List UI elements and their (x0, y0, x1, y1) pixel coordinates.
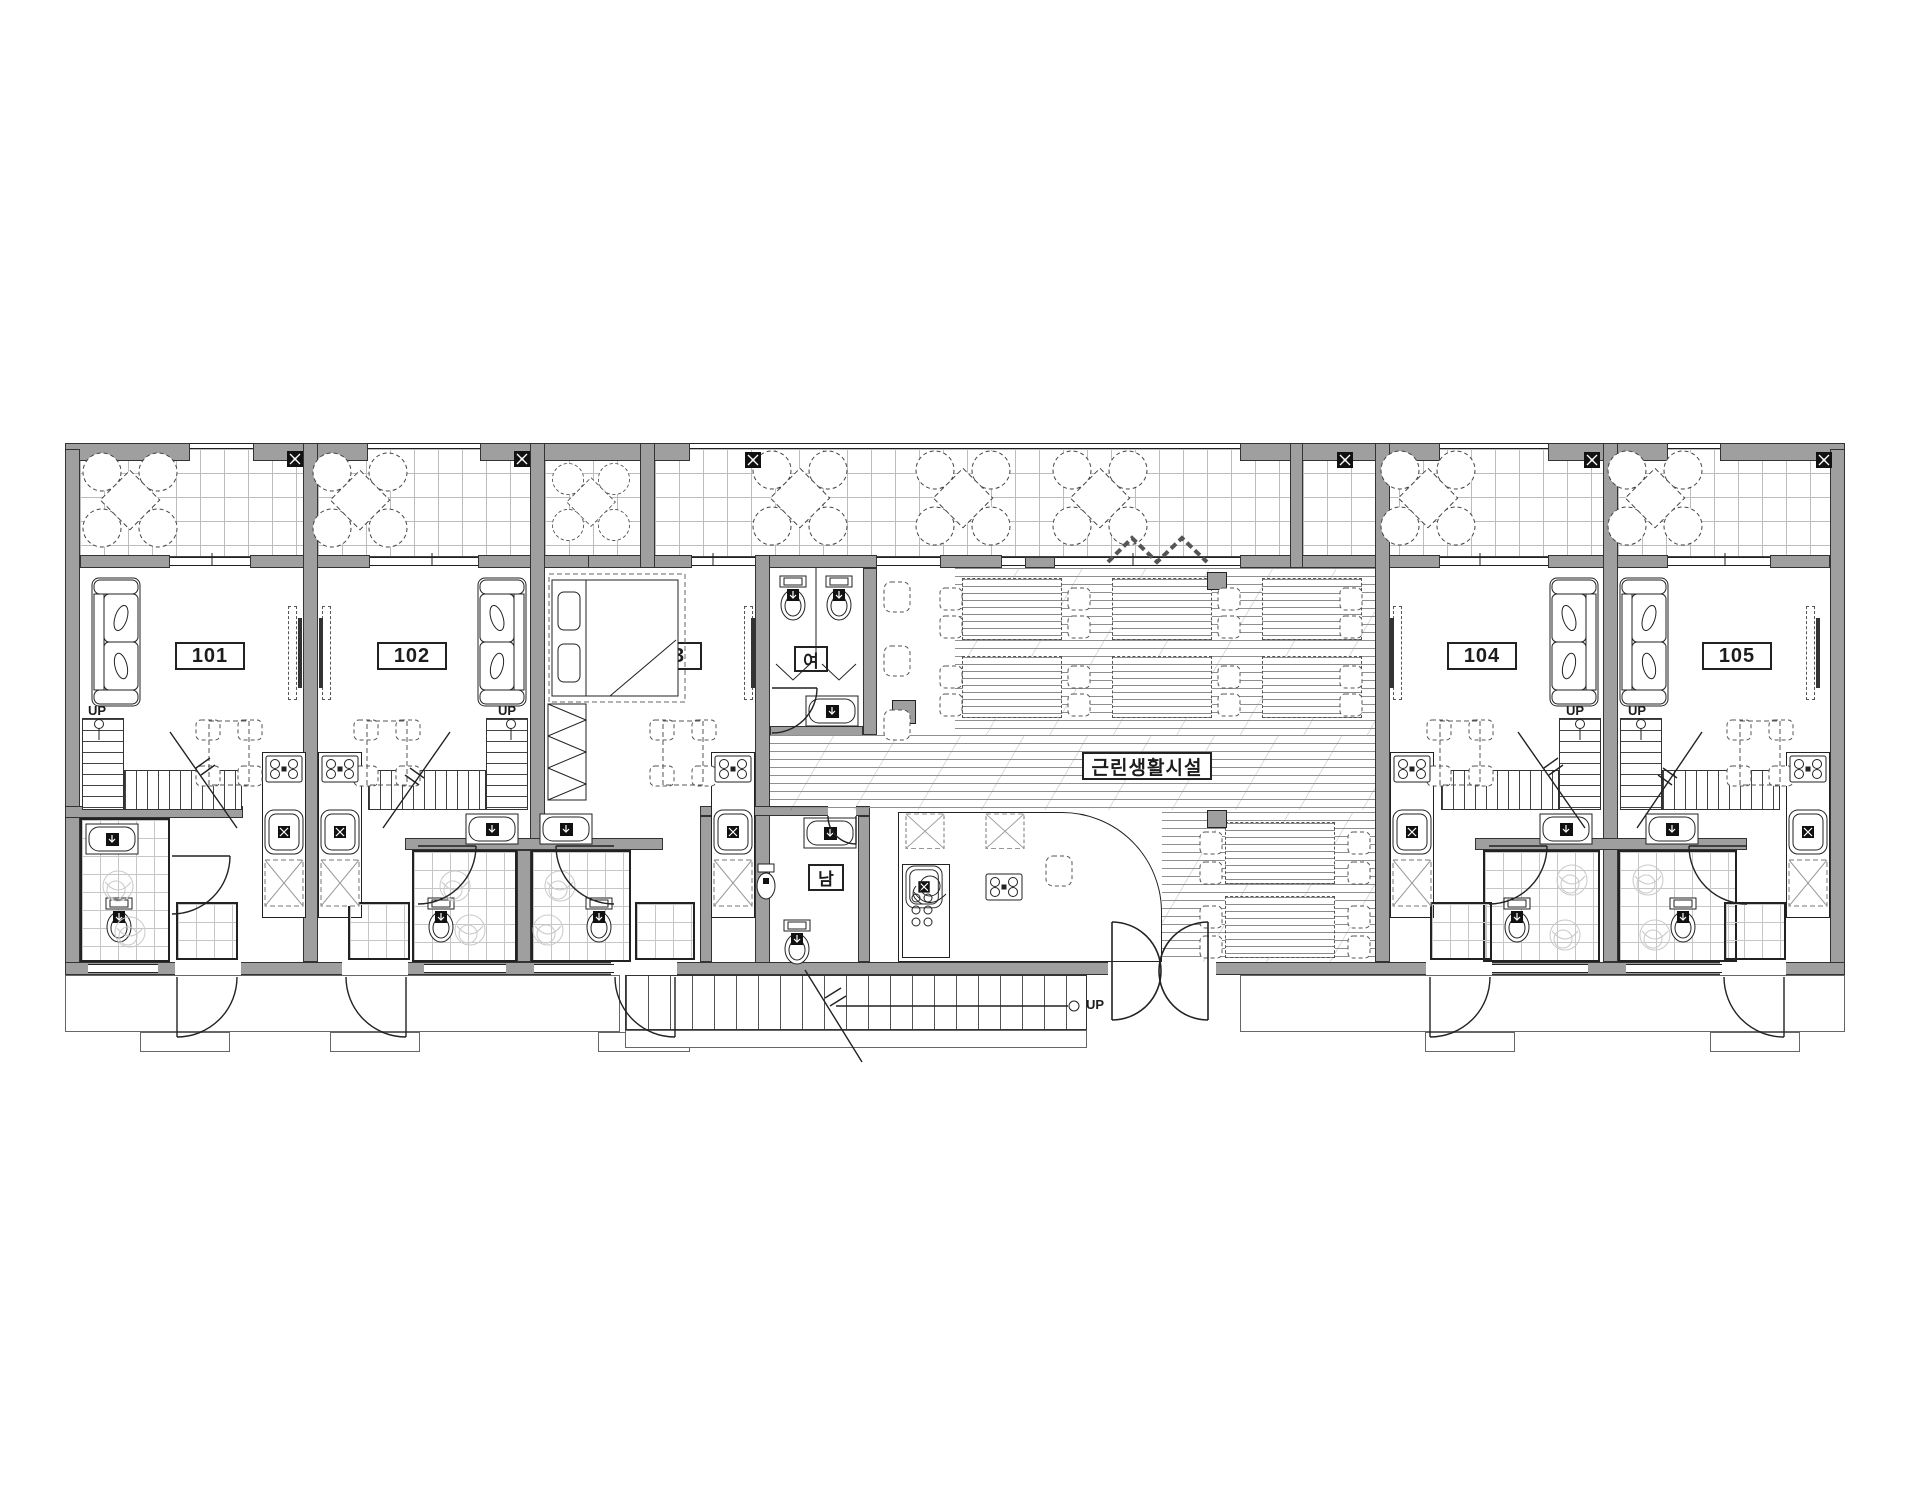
dining-set-103-part (650, 720, 716, 786)
column (892, 700, 916, 724)
sofa-105 (1620, 578, 1668, 706)
wall-party-104-105 (1603, 443, 1618, 962)
window (88, 964, 158, 973)
bed-103-part (558, 644, 580, 682)
kitchen-101 (262, 752, 306, 918)
tv-101 (288, 606, 297, 700)
stair-101 (82, 718, 124, 810)
stair-105 (1662, 770, 1780, 810)
parapet-cap (1720, 443, 1845, 461)
tv-102-panel (319, 618, 323, 688)
parapet-cap (1240, 443, 1440, 461)
kitchen-104 (1390, 752, 1434, 918)
bed-103 (549, 574, 685, 702)
terrace-unit-105 (1618, 449, 1830, 557)
porch-step (140, 1032, 230, 1052)
bathroom-102 (412, 850, 517, 962)
parapet-cap (65, 443, 190, 461)
hall-table (1262, 578, 1362, 640)
entry-pad-103 (635, 902, 695, 960)
women-label-text: 여 (803, 647, 819, 672)
wall-stub (1025, 557, 1055, 568)
room-number: 104 (1464, 645, 1500, 668)
entry-pad-102 (348, 902, 410, 960)
room-number: 101 (192, 645, 228, 668)
restroom-label-women: 여 (794, 646, 828, 672)
toilet-icon-part (780, 576, 806, 620)
aisle-chairs-part (884, 646, 910, 676)
toilet-icon-part (826, 576, 852, 620)
floor-plan-canvas: 101 102 103 104 105 근린생활시설 여 남 UP UP UP … (0, 0, 1920, 1503)
porch-slab-right (1240, 975, 1845, 1032)
exterior-stair-landing (625, 1030, 1087, 1048)
entry-pad-101 (176, 902, 238, 960)
bathroom-101 (80, 818, 170, 962)
hall-table (1225, 822, 1335, 884)
column (1207, 572, 1227, 590)
kitchen-103 (711, 752, 755, 918)
bed-103-part (549, 574, 685, 702)
wall-core-right (863, 568, 877, 735)
stair-102 (368, 770, 486, 810)
tv-104-panel (1390, 618, 1394, 688)
entry-opening-102 (342, 962, 408, 975)
hall-table (1112, 656, 1212, 718)
wall-terrace-div-com (1290, 443, 1303, 568)
stair-104 (1441, 770, 1559, 810)
wall-terrace-div-103 (640, 443, 655, 568)
sofa-104 (1550, 578, 1598, 706)
restroom-label-men: 남 (808, 864, 844, 891)
wall-outer-left (65, 449, 80, 975)
kitchen-102 (318, 752, 362, 918)
men-label-text: 남 (818, 865, 834, 890)
wall-stub (1770, 555, 1830, 568)
sofa-101-part (92, 578, 140, 706)
hall-table (1112, 578, 1212, 640)
wall-stub (80, 555, 170, 568)
stair-104 (1559, 718, 1601, 810)
commercial-label: 근린생활시설 (1082, 752, 1212, 780)
wall-party-102-103-lower (517, 850, 531, 962)
dining-set-103 (650, 720, 716, 786)
wall-stub (1240, 555, 1440, 568)
wood-floor-corridor (770, 735, 1375, 810)
up-label-105: UP (1628, 703, 1646, 718)
tv-101-panel (298, 618, 302, 688)
door-arcs-part (828, 816, 856, 844)
column (1207, 810, 1227, 828)
room-number: 103 (649, 645, 685, 668)
entry-pad-105 (1724, 902, 1786, 960)
wall-partition (1475, 838, 1747, 850)
up-label-exterior-stair: UP (1086, 997, 1104, 1012)
porch-step (1425, 1032, 1515, 1052)
room-number: 102 (394, 645, 430, 668)
room-number: 105 (1719, 645, 1755, 668)
entry-opening-104 (1426, 962, 1492, 975)
tv-102 (322, 606, 331, 700)
bath-sink-icon-part (806, 696, 858, 726)
sofa-102 (478, 578, 526, 706)
wall-stub (755, 555, 877, 568)
room-label-104: 104 (1447, 642, 1517, 670)
tv-104 (1393, 606, 1402, 700)
window (424, 964, 506, 973)
porch-step (1710, 1032, 1800, 1052)
entry-opening-105 (1720, 962, 1786, 975)
wardrobe-103-part (548, 704, 586, 800)
sofa-104-part (1550, 578, 1598, 706)
kitchen-island (902, 864, 950, 958)
wall-commercial-104 (1375, 443, 1390, 962)
kitchen-105 (1786, 752, 1830, 918)
porch-step (330, 1032, 420, 1052)
room-label-103: 103 (632, 642, 702, 670)
bathroom-104 (1483, 850, 1600, 962)
stair-105 (1620, 718, 1662, 810)
window (1492, 964, 1588, 973)
hall-table (1262, 656, 1362, 718)
commercial-label-text: 근린생활시설 (1092, 753, 1203, 780)
aisle-chairs-part (884, 582, 910, 612)
wardrobe-103-part (548, 704, 586, 800)
stair-101 (124, 770, 242, 810)
wall-party-102-103 (530, 443, 545, 853)
sofa-105-part (1620, 578, 1668, 706)
toilet-icon-part (784, 920, 810, 964)
room-label-101: 101 (175, 642, 245, 670)
entry-pad-104 (1430, 902, 1492, 960)
tv-103-panel (751, 618, 755, 688)
room-label-102: 102 (377, 642, 447, 670)
wall-men-right (858, 816, 870, 962)
room-label-105: 105 (1702, 642, 1772, 670)
entry-opening-commercial (1108, 962, 1216, 975)
bathroom-103 (531, 850, 631, 962)
terrace-commercial (655, 449, 1290, 557)
tv-105 (1806, 606, 1815, 700)
hall-table (962, 656, 1062, 718)
parapet-cap (480, 443, 690, 461)
terrace-unit-102 (318, 449, 530, 557)
entry-opening-103 (611, 962, 677, 975)
porch-slab-left (65, 975, 620, 1032)
terrace-unit-103 (545, 449, 640, 557)
entry-opening-101 (175, 962, 241, 975)
up-label-102: UP (498, 703, 516, 718)
sofa-102-part (478, 578, 526, 706)
window (1626, 964, 1722, 973)
terrace-unit-104 (1303, 449, 1603, 557)
exterior-stair (625, 975, 1087, 1030)
wall-outer-right (1830, 449, 1845, 975)
wall-unit103-core (755, 555, 770, 975)
up-label-104: UP (1566, 703, 1584, 718)
sofa-101 (92, 578, 140, 706)
wardrobe-103 (548, 704, 586, 800)
bathroom-105 (1618, 850, 1737, 962)
hall-table (1225, 896, 1335, 958)
up-label-101: UP (88, 703, 106, 718)
window (534, 964, 614, 973)
hall-table (962, 578, 1062, 640)
terrace-unit-101 (80, 449, 303, 557)
bed-103-part (552, 580, 678, 696)
bed-103-part (558, 592, 580, 630)
stair-102 (486, 718, 528, 810)
bath-sink-icon-part (804, 818, 856, 848)
wall-partition (405, 838, 663, 850)
wall-stub (940, 555, 1002, 568)
tv-105-panel (1816, 618, 1820, 688)
